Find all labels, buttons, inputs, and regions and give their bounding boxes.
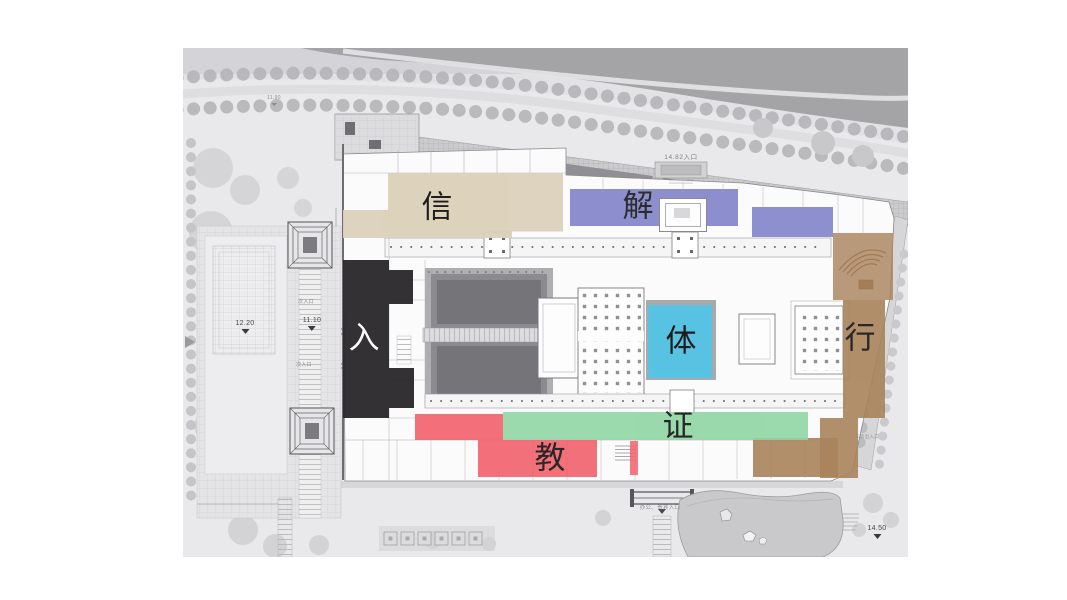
elevation-marker: 14.50 — [867, 525, 886, 539]
side-gate-upper-label: 次入口 — [298, 298, 314, 305]
elevation-marker-icon — [271, 103, 277, 106]
side-gate-lower-label: 次入口 — [296, 361, 312, 368]
east-pavilion — [791, 301, 849, 379]
zone-xing: 行 — [843, 300, 885, 418]
zone-zheng: 证 — [503, 412, 808, 440]
zone-ti-label: 体 — [666, 326, 697, 357]
elevation-value: 11.10 — [303, 317, 322, 325]
east-hall — [739, 314, 775, 364]
zone-jiao-upper — [415, 414, 503, 440]
zone-ru-annex — [389, 368, 414, 408]
zone-jiao: 教 — [478, 440, 597, 477]
north-entrance-label: 14.82入口 — [664, 151, 697, 161]
elevation-marker-icon — [308, 326, 316, 331]
zone-xin-label: 信 — [422, 192, 453, 223]
zone-xing-label: 行 — [845, 323, 876, 354]
south-walk — [313, 481, 843, 488]
west-plaza — [185, 226, 341, 518]
elevation-marker: 12.20 — [235, 320, 254, 334]
zone-jie-label: 解 — [623, 191, 654, 222]
zone-jiao-sliver — [630, 441, 638, 475]
planter-row — [379, 526, 495, 551]
zone-ru-annex — [389, 270, 413, 304]
zone-jie: 解 — [570, 189, 738, 226]
site-plan: 信 解 入 体 行 证 教 — [183, 48, 908, 557]
zone-xing-southrow — [753, 438, 838, 477]
zone-jiao-label: 教 — [535, 443, 566, 474]
pagoda-icon — [288, 222, 332, 268]
elevation-marker-icon — [241, 329, 249, 334]
west-courtyard — [423, 268, 555, 408]
elevation-value: 14.50 — [867, 525, 886, 533]
site-plan-drawing — [183, 48, 908, 557]
zone-ru-label: 入 — [349, 323, 380, 354]
canvas: 信 解 入 体 行 证 教 — [0, 0, 1067, 600]
elevation-marker-icon — [873, 534, 881, 539]
pagoda-icon — [290, 408, 334, 454]
elevation-value: 11.90 — [267, 96, 281, 102]
zone-zheng-label: 证 — [663, 411, 694, 442]
pond — [678, 491, 843, 557]
zone-ru: 入 — [343, 260, 389, 418]
elevation-value: 12.20 — [235, 320, 254, 328]
zone-jie-east — [752, 207, 833, 237]
north-pavilion-core — [674, 208, 690, 218]
elevation-marker: 11.10 — [303, 317, 322, 331]
main-hall — [538, 298, 580, 378]
zone-ti: 体 — [648, 305, 712, 378]
north-pavilion — [659, 198, 707, 232]
elevation-marker: 11.90 — [267, 96, 281, 106]
garage-entrance-label: 车房出入口 — [855, 434, 879, 440]
zone-xing-auditorium — [833, 233, 893, 300]
south-entrance-label: 办公、贵宾入口 — [640, 503, 681, 511]
column-hall — [578, 288, 644, 396]
